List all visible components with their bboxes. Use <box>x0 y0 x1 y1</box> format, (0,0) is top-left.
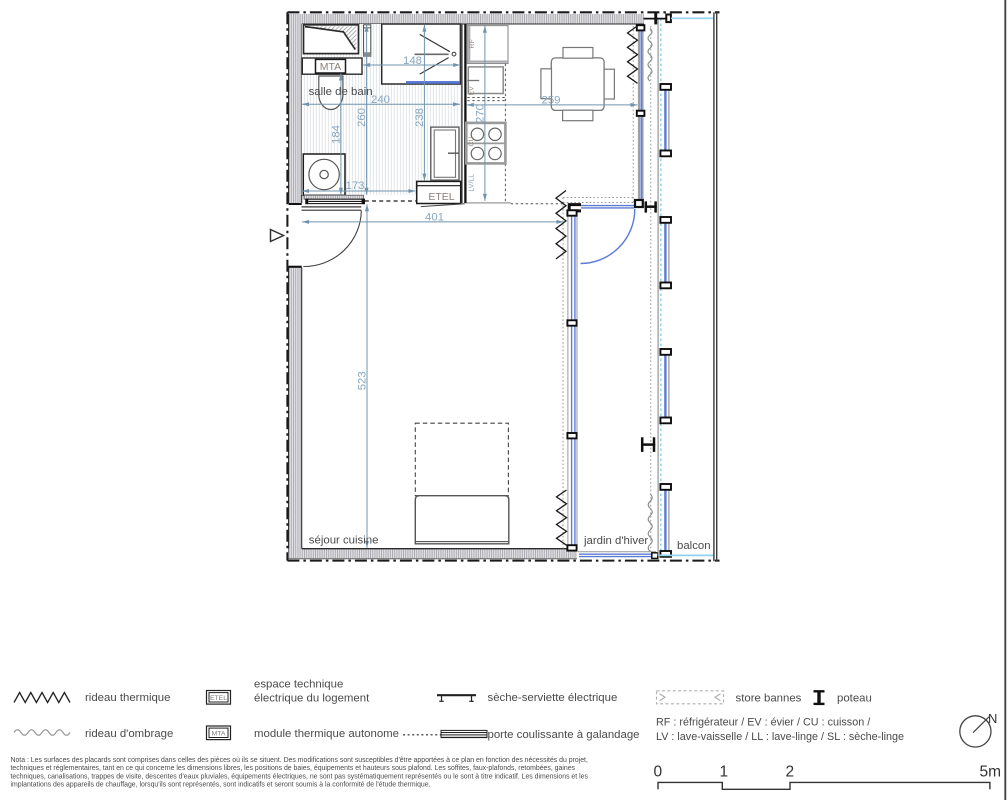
svg-text:240: 240 <box>371 94 390 106</box>
svg-text:implantations des appareils de: implantations des appareils de chauffage… <box>11 782 431 789</box>
svg-text:260: 260 <box>356 108 368 127</box>
svg-text:électrique du logement: électrique du logement <box>254 693 370 705</box>
svg-text:module thermique autonome: module thermique autonome <box>254 728 399 740</box>
svg-text:balcon: balcon <box>677 540 711 552</box>
svg-text:ETEL: ETEL <box>210 695 227 702</box>
svg-text:techniques et réglementaires,: techniques et réglementaires, tant en ce… <box>11 765 576 772</box>
svg-text:jardin d'hiver: jardin d'hiver <box>583 535 648 547</box>
svg-text:ETEL: ETEL <box>428 191 454 203</box>
svg-text:EV: EV <box>468 86 475 96</box>
svg-text:Nota : Les surfaces des placar: Nota : Les surfaces des placards sont co… <box>11 757 588 764</box>
svg-text:store bannes: store bannes <box>736 693 802 705</box>
svg-text:5m: 5m <box>980 764 1002 781</box>
svg-text:porte coulissante à galandage: porte coulissante à galandage <box>488 729 640 741</box>
svg-text:0: 0 <box>654 764 663 781</box>
svg-text:MTA: MTA <box>212 730 226 737</box>
svg-text:238: 238 <box>414 108 426 127</box>
svg-text:N: N <box>988 711 997 726</box>
svg-text:rideau d'ombrage: rideau d'ombrage <box>85 728 173 740</box>
svg-text:rideau thermique: rideau thermique <box>85 692 170 704</box>
svg-text:espace technique: espace technique <box>254 679 343 691</box>
svg-text:techniques, canalisations, tra: techniques, canalisations, trappes de vi… <box>11 773 589 780</box>
svg-text:RF: RF <box>469 39 476 48</box>
svg-text:523: 523 <box>356 371 368 390</box>
svg-text:184: 184 <box>330 125 342 144</box>
svg-text:séjour cuisine: séjour cuisine <box>309 535 379 547</box>
svg-text:LV : lave-vaisselle / LL : lav: LV : lave-vaisselle / LL : lave-linge / … <box>656 731 904 743</box>
svg-text:1: 1 <box>720 764 729 781</box>
svg-text:2: 2 <box>786 764 795 781</box>
svg-text:270: 270 <box>474 104 486 123</box>
svg-text:sèche-serviette électrique: sèche-serviette électrique <box>488 692 618 704</box>
svg-text:259: 259 <box>542 95 561 107</box>
svg-text:LV/LL: LV/LL <box>468 174 475 192</box>
svg-text:148: 148 <box>403 55 422 67</box>
svg-text:poteau: poteau <box>837 693 872 705</box>
svg-text:RF : réfrigérateur / EV : évie: RF : réfrigérateur / EV : évier / CU : c… <box>656 717 870 729</box>
svg-text:173: 173 <box>346 180 365 192</box>
svg-text:salle de bain: salle de bain <box>309 86 373 98</box>
svg-text:401: 401 <box>425 211 444 223</box>
svg-text:MTA: MTA <box>320 61 341 73</box>
